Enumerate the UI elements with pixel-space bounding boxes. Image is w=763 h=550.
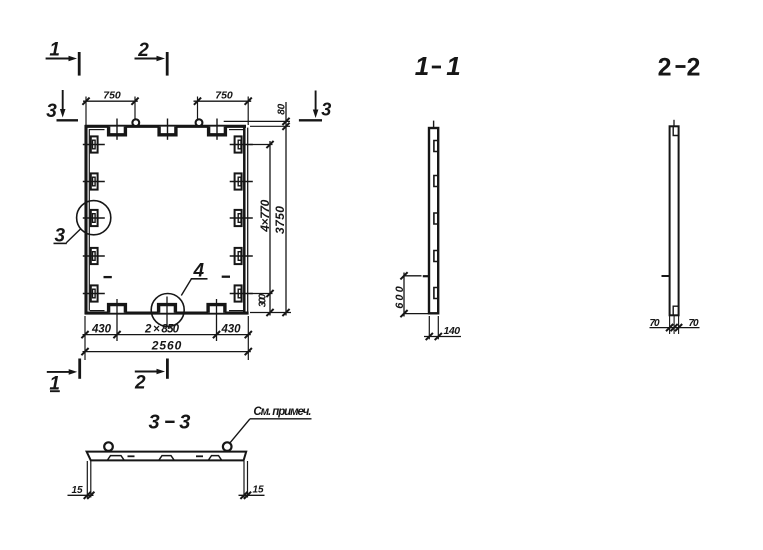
svg-text:4×770: 4×770 <box>258 199 272 232</box>
svg-text:2560: 2560 <box>151 339 182 353</box>
svg-text:140: 140 <box>444 325 461 337</box>
svg-text:1: 1 <box>446 51 460 81</box>
svg-text:2: 2 <box>687 54 701 82</box>
svg-text:15: 15 <box>72 485 83 496</box>
svg-text:430: 430 <box>91 324 112 336</box>
svg-text:600: 600 <box>394 285 406 308</box>
svg-text:3: 3 <box>55 225 66 246</box>
svg-text:80: 80 <box>276 103 287 114</box>
svg-text:3: 3 <box>179 412 190 434</box>
svg-text:3: 3 <box>321 100 331 120</box>
svg-text:2: 2 <box>134 373 146 394</box>
svg-text:3: 3 <box>46 101 57 122</box>
svg-text:4: 4 <box>193 261 205 282</box>
svg-text:См. примеч.: См. примеч. <box>253 406 311 418</box>
svg-text:70: 70 <box>689 318 699 329</box>
svg-text:1: 1 <box>415 51 429 81</box>
svg-text:70: 70 <box>650 318 660 329</box>
svg-text:2 × 850: 2 × 850 <box>144 324 180 336</box>
svg-text:2: 2 <box>137 40 149 61</box>
svg-text:3750: 3750 <box>273 206 287 234</box>
svg-text:300: 300 <box>258 293 269 307</box>
svg-text:15: 15 <box>253 484 264 495</box>
svg-text:2: 2 <box>658 54 672 82</box>
svg-text:3: 3 <box>148 412 159 434</box>
svg-text:750: 750 <box>215 90 233 102</box>
svg-text:1: 1 <box>49 40 60 61</box>
svg-text:750: 750 <box>103 90 121 102</box>
svg-text:430: 430 <box>221 324 242 336</box>
